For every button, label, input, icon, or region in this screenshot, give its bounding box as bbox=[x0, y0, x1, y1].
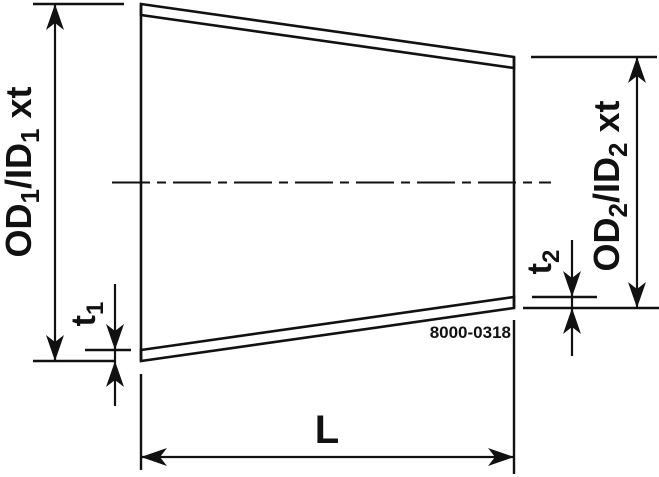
t2-label: t2 bbox=[521, 250, 565, 275]
part-number: 8000-0318 bbox=[430, 323, 511, 342]
drawing-svg: OD1/ID1xt t1 OD2/ID2xt t2 bbox=[0, 0, 659, 477]
dimension-t1: t1 bbox=[65, 284, 131, 406]
length-label: L bbox=[315, 408, 339, 452]
reducer-top-wall bbox=[141, 4, 514, 68]
od1-label: OD1/ID1xt bbox=[0, 87, 45, 258]
reducer-technical-drawing: OD1/ID1xt t1 OD2/ID2xt t2 bbox=[0, 0, 659, 477]
od2-label: OD2/ID2xt bbox=[586, 101, 633, 272]
t1-label: t1 bbox=[65, 302, 109, 327]
